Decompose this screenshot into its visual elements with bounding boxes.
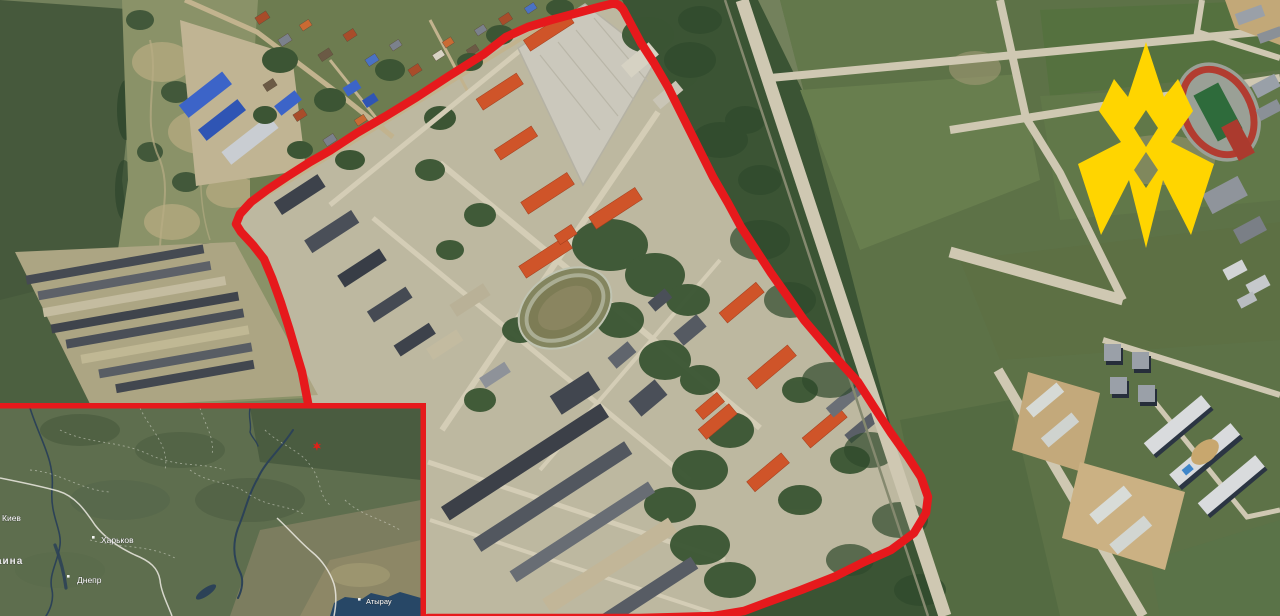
inset-border-right (421, 403, 427, 616)
city-dot-kharkiv (92, 536, 95, 539)
inset-label-kharkiv: Харьков (101, 535, 134, 545)
inset-label-kyiv: Киев (2, 513, 21, 523)
inset-label-atyrau: Атырау (366, 597, 392, 606)
city-dot-atyrau (358, 598, 361, 601)
inset-border-top (0, 403, 426, 409)
inset-label-country: Украина (0, 556, 23, 567)
satellite-screenshot: Киев Украина Харьков Днепр Атырау (0, 0, 1280, 616)
city-dot-dnipro (67, 575, 70, 578)
satellite-basemap: Киев Украина Харьков Днепр Атырау (0, 0, 1280, 616)
inset-label-dnipro: Днепр (77, 575, 102, 585)
inset-map: Киев Украина Харьков Днепр Атырау (0, 403, 426, 616)
